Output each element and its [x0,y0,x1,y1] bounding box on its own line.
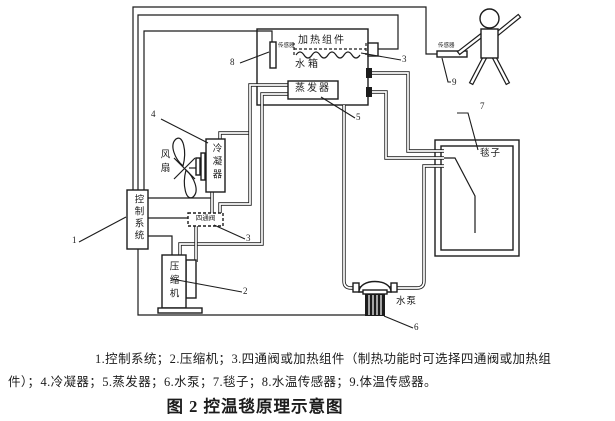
fan-icon [173,138,205,198]
water-tank-label: 水箱 [295,60,321,70]
control-system-label: 控制系统 [132,194,142,242]
callout-8: 8 [230,58,235,67]
compressor-box [158,255,202,313]
figure-title: 图 2 控温毯原理示意图 [0,393,510,417]
water-pump-label: 水泵 [396,298,417,308]
four-way-valve-label: 四通阀 [188,216,223,223]
schematic-diagram [0,0,615,340]
water-temp-sensor-label: 传感器 [278,44,295,50]
callout-9: 9 [452,78,457,87]
body-temp-sensor-label: 传感器 [438,44,455,50]
callout-7: 7 [480,102,485,111]
water-pump-icon [353,282,397,317]
callout-1: 1 [72,236,77,245]
callout-3-valve: 3 [246,234,251,243]
blanket-label: 毯子 [480,150,501,160]
water-temp-sensor-icon [270,42,276,68]
callout-2: 2 [243,287,248,296]
callout-4: 4 [151,110,156,119]
callout-5: 5 [356,113,361,122]
compressor-label: 压缩机 [167,261,177,302]
fan-label: 风扇 [158,149,168,176]
condenser-label: 冷凝器 [210,143,220,182]
person-icon [460,9,518,82]
caption-line-2: 件）；4.冷凝器；5.蒸发器；6.水泵；7.毯子；8.水温传感器；9.体温传感器… [8,371,437,390]
figure-page: 加热组件 水箱 蒸发器 传感器 传感器 风扇 冷凝器 控制系统 压缩机 四通阀 … [0,0,615,421]
callout-6: 6 [414,323,419,332]
callout-3-heater: 3 [402,55,407,64]
heating-component-label: 加热组件 [298,36,346,46]
evaporator-label: 蒸发器 [288,84,338,94]
caption-line-1: 1.控制系统；2.压缩机；3.四通阀或加热组件（制热功能时可选择四通阀或加热组 [95,348,551,367]
